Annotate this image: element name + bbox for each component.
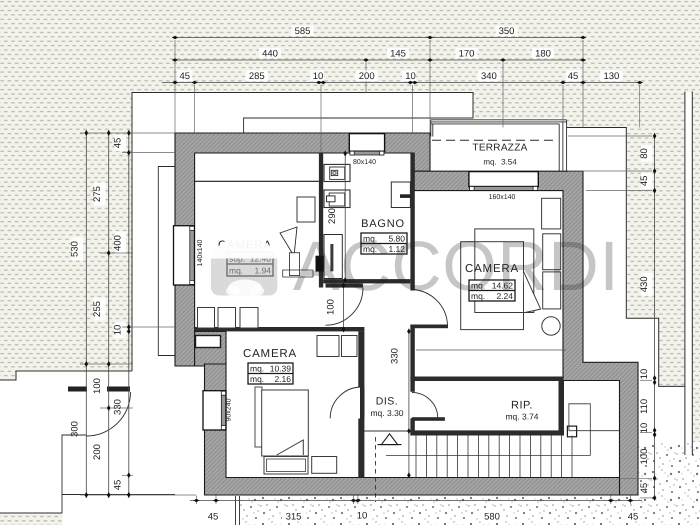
svg-text:330: 330 [113, 399, 124, 415]
svg-text:110: 110 [639, 399, 650, 414]
svg-text:340: 340 [481, 71, 497, 82]
svg-text:285: 285 [249, 71, 265, 82]
svg-text:300: 300 [70, 421, 81, 437]
svg-text:10: 10 [313, 71, 324, 82]
svg-text:mq.: mq. [250, 364, 264, 374]
svg-text:mq. 3.30: mq. 3.30 [370, 408, 403, 418]
svg-text:10: 10 [639, 423, 650, 434]
svg-text:10.39: 10.39 [270, 364, 292, 374]
svg-text:200: 200 [359, 71, 375, 82]
svg-text:290: 290 [327, 208, 338, 224]
svg-text:10: 10 [405, 71, 416, 82]
svg-text:CAMERA: CAMERA [243, 348, 297, 360]
svg-text:80: 80 [639, 148, 650, 159]
svg-text:DIS.: DIS. [376, 396, 398, 408]
svg-text:145: 145 [390, 49, 406, 60]
svg-text:100: 100 [639, 449, 650, 465]
svg-text:100: 100 [92, 378, 103, 394]
svg-text:80x140: 80x140 [353, 159, 376, 166]
svg-text:585: 585 [295, 26, 311, 37]
svg-text:255: 255 [92, 301, 103, 317]
svg-text:RIP.: RIP. [511, 400, 533, 412]
svg-text:45: 45 [113, 480, 124, 491]
svg-text:45: 45 [639, 176, 650, 187]
svg-text:440: 440 [262, 49, 278, 60]
svg-text:45: 45 [568, 71, 579, 82]
svg-text:180: 180 [535, 49, 551, 60]
svg-text:10: 10 [357, 511, 368, 522]
svg-text:200: 200 [92, 444, 103, 460]
svg-text:10: 10 [639, 369, 650, 380]
svg-text:170: 170 [459, 49, 475, 60]
svg-text:580: 580 [484, 512, 500, 523]
svg-text:160x140: 160x140 [489, 194, 516, 201]
svg-text:45: 45 [180, 71, 191, 82]
svg-text:TERRAZZA: TERRAZZA [472, 143, 527, 154]
svg-text:430: 430 [639, 276, 650, 292]
svg-text:350: 350 [499, 26, 515, 37]
svg-text:400: 400 [113, 235, 124, 251]
svg-text:90x240: 90x240 [226, 398, 233, 421]
svg-text:45: 45 [208, 512, 219, 523]
svg-text:330: 330 [390, 348, 401, 364]
svg-text:130: 130 [603, 71, 619, 82]
svg-text:2.16: 2.16 [274, 374, 291, 384]
svg-text:275: 275 [92, 186, 103, 202]
svg-text:mq.: mq. [250, 374, 264, 384]
svg-text:140x140: 140x140 [197, 239, 204, 266]
svg-text:mq. 3.74: mq. 3.74 [505, 412, 538, 422]
svg-text:ACCORDI: ACCORDI [293, 227, 619, 305]
svg-text:10: 10 [113, 325, 124, 336]
svg-text:315: 315 [286, 512, 302, 523]
svg-text:mq. 3.54: mq. 3.54 [483, 158, 517, 167]
svg-text:45: 45 [639, 483, 650, 494]
svg-text:45: 45 [628, 512, 639, 523]
svg-text:530: 530 [70, 241, 81, 257]
svg-text:45: 45 [113, 138, 124, 149]
